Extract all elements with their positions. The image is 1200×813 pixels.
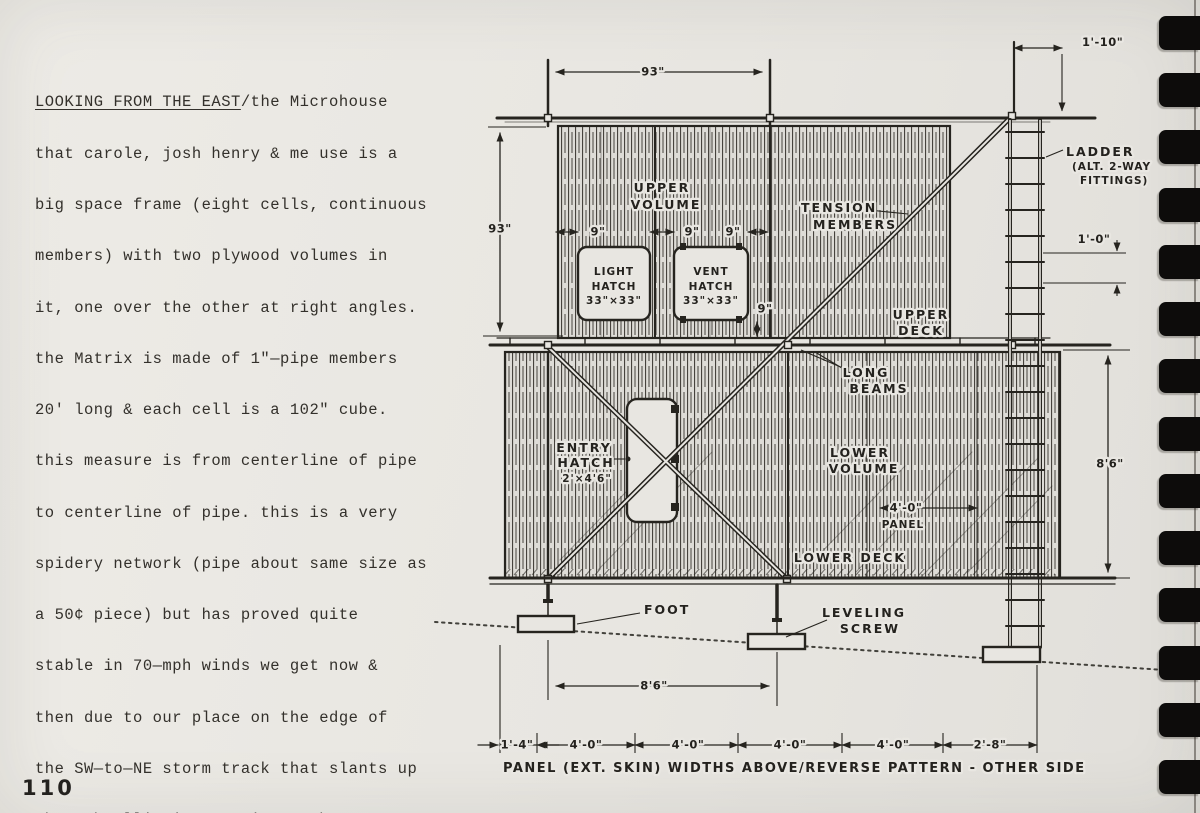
dim-bottom-6: 2'-8" bbox=[974, 738, 1007, 752]
label-long-beams-1: LONG bbox=[843, 365, 890, 380]
label-vent-hatch-1: VENT bbox=[693, 266, 728, 278]
heading-rest: /the Microhouse bbox=[241, 93, 388, 111]
foot-left bbox=[518, 616, 574, 632]
label-ladder-2: (ALT. 2-WAY bbox=[1072, 161, 1151, 173]
drawing-caption: PANEL (EXT. SKIN) WIDTHS ABOVE/REVERSE P… bbox=[503, 761, 1086, 776]
text-line: this measure is from centerline of pipe bbox=[35, 453, 465, 470]
dimension-8-6-bottom bbox=[548, 640, 777, 706]
binding-tab bbox=[1159, 245, 1200, 279]
label-upper-deck-1: UPPER bbox=[893, 307, 950, 322]
text-line: members) with two plywood volumes in bbox=[35, 248, 465, 265]
section-heading: LOOKING FROM THE EAST bbox=[35, 93, 241, 111]
label-upper-deck-2: DECK bbox=[898, 323, 944, 338]
label-entry-size: 2'×4'6" bbox=[562, 473, 612, 485]
text-line: then due to our place on the edge of bbox=[35, 710, 465, 727]
book-page: 93" 93" UPPER VOLUME 9" 9" 9" 9" LIGHT H… bbox=[0, 0, 1200, 813]
binding-tab bbox=[1159, 73, 1200, 107]
text-line: stable in 70—mph winds we get now & bbox=[35, 658, 465, 675]
label-leveling-1: LEVELING bbox=[822, 605, 906, 620]
label-lower-volume-1: LOWER bbox=[830, 445, 890, 460]
binding-tab bbox=[1159, 703, 1200, 737]
foot-right bbox=[983, 647, 1040, 662]
label-leveling-2: SCREW bbox=[840, 621, 900, 636]
dim-bottom-3: 4'-0" bbox=[672, 738, 705, 752]
dim-bottom-1: 1'-4" bbox=[501, 738, 534, 752]
label-upper-volume-2: VOLUME bbox=[631, 197, 702, 212]
binding-tab bbox=[1159, 531, 1200, 565]
comb-binding bbox=[1154, 0, 1200, 813]
text-line: the Matrix is made of 1"—pipe members bbox=[35, 351, 465, 368]
text-line: that carole, josh henry & me use is a bbox=[35, 146, 465, 163]
label-entry-2: HATCH bbox=[557, 455, 614, 470]
label-ladder-1: LADDER bbox=[1066, 144, 1135, 159]
binding-tab bbox=[1159, 417, 1200, 451]
binding-tab bbox=[1159, 302, 1200, 336]
text-line: LOOKING FROM THE EAST/the Microhouse bbox=[35, 94, 465, 111]
label-light-hatch-2: HATCH bbox=[592, 281, 637, 293]
entry-hatch bbox=[627, 399, 679, 522]
dim-top-width: 93" bbox=[641, 65, 665, 79]
label-vent-hatch-size: 33"×33" bbox=[683, 295, 739, 307]
dim-9-bottom: 9" bbox=[758, 302, 773, 316]
binding-tab bbox=[1159, 359, 1200, 393]
binding-tab bbox=[1159, 474, 1200, 508]
text-line: it, one over the other at right angles. bbox=[35, 300, 465, 317]
text-line: to centerline of pipe. this is a very bbox=[35, 505, 465, 522]
label-vent-hatch-2: HATCH bbox=[689, 281, 734, 293]
dim-right-height: 8'6" bbox=[1096, 457, 1124, 471]
label-tension-1: TENSION bbox=[801, 200, 877, 215]
dim-bottom-4: 4'-0" bbox=[774, 738, 807, 752]
dim-panel-width: 4'-0" bbox=[890, 501, 923, 515]
dim-leg-span: 8'6" bbox=[640, 679, 668, 693]
text-line: spidery network (pipe about same size as bbox=[35, 556, 465, 573]
dim-left-height: 93" bbox=[488, 222, 512, 236]
dimension-1-10-ladder bbox=[1014, 48, 1062, 111]
binding-tab bbox=[1159, 16, 1200, 50]
label-tension-2: MEMBERS bbox=[813, 217, 897, 232]
left-text-column: LOOKING FROM THE EAST/the Microhouse tha… bbox=[35, 26, 465, 813]
binding-tab bbox=[1159, 130, 1200, 164]
dim-ladder-offset: 1'-10" bbox=[1082, 35, 1123, 49]
paragraph-looking-from-east: LOOKING FROM THE EAST/the Microhouse tha… bbox=[35, 60, 465, 813]
dim-rail-gap: 1'-0" bbox=[1078, 232, 1111, 246]
label-upper-volume-1: UPPER bbox=[634, 180, 691, 195]
dim-bottom-2: 4'-0" bbox=[570, 738, 603, 752]
dim-bottom-5: 4'-0" bbox=[877, 738, 910, 752]
dim-9-left: 9" bbox=[591, 225, 606, 239]
matrix-frame-top bbox=[497, 42, 1095, 126]
foot-middle bbox=[748, 634, 805, 649]
dim-9-mid: 9" bbox=[685, 225, 700, 239]
dimension-1-0-rail bbox=[1043, 240, 1126, 296]
label-ladder-3: FITTINGS) bbox=[1080, 175, 1148, 187]
text-line: 20' long & each cell is a 102" cube. bbox=[35, 402, 465, 419]
text-line: the SW—to—NE storm track that slants up bbox=[35, 761, 465, 778]
dimension-panel-chain bbox=[478, 645, 1037, 753]
label-foot: FOOT bbox=[644, 602, 690, 617]
label-light-hatch-1: LIGHT bbox=[594, 266, 634, 278]
page-number: 110 bbox=[22, 776, 75, 800]
label-light-hatch-size: 33"×33" bbox=[586, 295, 642, 307]
label-lower-deck: LOWER DECK bbox=[794, 550, 906, 565]
text-line: a 50¢ piece) but has proved quite bbox=[35, 607, 465, 624]
binding-tab bbox=[1159, 588, 1200, 622]
text-line: big space frame (eight cells, continuous bbox=[35, 197, 465, 214]
legs-and-feet bbox=[518, 585, 1040, 662]
binding-tab bbox=[1159, 760, 1200, 794]
label-long-beams-2: BEAMS bbox=[849, 381, 908, 396]
dim-9-right: 9" bbox=[726, 225, 741, 239]
binding-tab bbox=[1159, 646, 1200, 680]
label-panel-word: PANEL bbox=[882, 519, 925, 531]
label-entry-1: ENTRY bbox=[556, 440, 612, 455]
binding-tab bbox=[1159, 188, 1200, 222]
label-lower-volume-2: VOLUME bbox=[829, 461, 900, 476]
